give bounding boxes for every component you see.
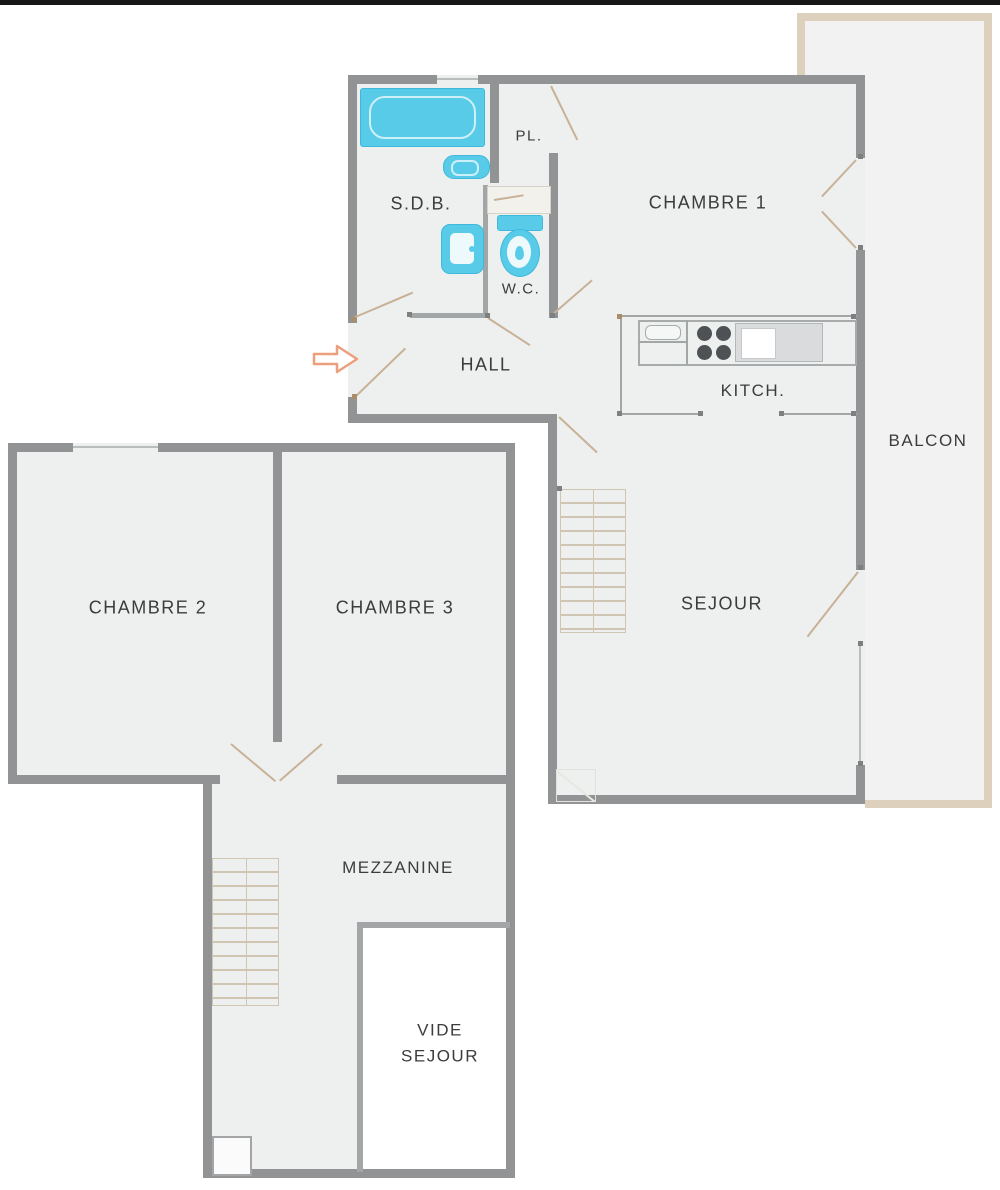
floor-hatch <box>556 769 596 802</box>
kitchen-line-bottom-right <box>782 413 857 415</box>
room-label-pl: PL. <box>515 128 542 145</box>
room-label-hall: HALL <box>460 355 511 376</box>
sejour-staircase <box>560 489 626 633</box>
wall-ch2-left <box>8 443 17 784</box>
entrance-arrow-icon <box>311 342 361 376</box>
hinge-dot <box>351 317 356 322</box>
window-end-dot <box>858 761 863 766</box>
wall-right-1 <box>856 75 865 158</box>
room-label-chambre1: CHAMBRE 1 <box>649 193 768 214</box>
room-label-sejour: SEJOUR <box>681 594 763 615</box>
stove-burner <box>697 326 712 341</box>
balcony-rail-top <box>797 13 992 21</box>
wall-ch2-ch3-divider <box>273 452 282 742</box>
room-label-sdb: S.D.B. <box>390 194 451 215</box>
wall-end-dot <box>550 313 555 318</box>
vide-sejour-line2: SEJOUR <box>401 1044 479 1070</box>
balcony-rail-left <box>797 13 805 84</box>
wall-ch-top-right <box>158 443 507 452</box>
wall-ch2-top-left <box>8 443 73 452</box>
stove-burner <box>716 345 731 360</box>
sejour-balcony-opening <box>856 570 865 645</box>
wall-top-right <box>478 75 865 84</box>
wall-end-dot <box>407 312 412 317</box>
window-sejour <box>859 645 861 765</box>
kitchen-appliance-door <box>741 328 776 359</box>
stair-post <box>557 486 562 491</box>
utility-box <box>212 1136 252 1176</box>
window-end-dot <box>858 641 863 646</box>
wall-end-dot <box>851 314 856 319</box>
room-label-vide-sejour: VIDE SEJOUR <box>401 1018 479 1071</box>
wall-hall-bottom <box>348 414 557 423</box>
chambre1-balcony-opening <box>856 158 865 250</box>
vide-sejour-wall-left <box>357 922 363 1172</box>
wall-ch3-bottom <box>337 775 515 784</box>
window-ch2 <box>73 446 158 448</box>
room-label-mezzanine: MEZZANINE <box>342 858 454 878</box>
wall-end-dot <box>485 313 490 318</box>
wall-sdb-pl <box>490 84 499 183</box>
wall-end-dot <box>698 411 703 416</box>
kitchen-line-left <box>620 315 622 415</box>
sink-divider <box>638 341 688 343</box>
kitchen-sink <box>645 325 681 340</box>
wall-end-dot <box>851 411 856 416</box>
hinge-dot <box>858 245 863 250</box>
kitchen-line-bottom-left <box>620 413 702 415</box>
balcony-rail-bottom <box>865 800 992 808</box>
wall-sejour-left <box>548 414 557 804</box>
room-label-chambre3: CHAMBRE 3 <box>336 598 455 619</box>
hinge-dot <box>352 394 357 399</box>
room-label-wc: W.C. <box>502 281 541 298</box>
wall-right-2 <box>856 250 865 570</box>
vide-sejour-wall-top <box>357 922 510 928</box>
mezzanine-staircase <box>212 858 279 1006</box>
washbasin <box>443 155 490 179</box>
wall-ch2-bottom <box>8 775 220 784</box>
toilet-bowl <box>500 229 540 277</box>
stove-burner <box>697 345 712 360</box>
wall-end-dot <box>779 411 784 416</box>
wall-end-dot <box>617 411 622 416</box>
room-label-chambre2: CHAMBRE 2 <box>89 598 208 619</box>
hinge-dot <box>858 565 863 570</box>
wc-shelf <box>487 186 551 214</box>
window-top <box>437 78 478 80</box>
wall-mezzanine-left <box>203 775 212 1178</box>
stove-burner <box>716 326 731 341</box>
floor-plan: S.D.B. PL. W.C. HALL KITCH. CHAMBRE 1 BA… <box>0 0 1000 1190</box>
bathtub <box>360 88 485 147</box>
hinge-dot <box>858 154 863 159</box>
wall-end-dot <box>617 314 622 319</box>
balcony-rail-right <box>984 13 992 808</box>
wall-right-3 <box>856 765 865 804</box>
top-border-bar <box>0 0 1000 5</box>
wall-top-left <box>348 75 437 84</box>
kitchen-line-top <box>620 315 857 317</box>
wall-lower-right <box>506 443 515 1178</box>
room-label-balcony: BALCON <box>889 431 968 451</box>
sdb-basin <box>441 224 484 274</box>
wall-hall-top <box>410 313 490 318</box>
wall-wc-right <box>549 153 558 318</box>
wall-left-upper <box>348 75 357 323</box>
vide-sejour-line1: VIDE <box>401 1018 479 1044</box>
room-label-kitchen: KITCH. <box>721 381 786 401</box>
